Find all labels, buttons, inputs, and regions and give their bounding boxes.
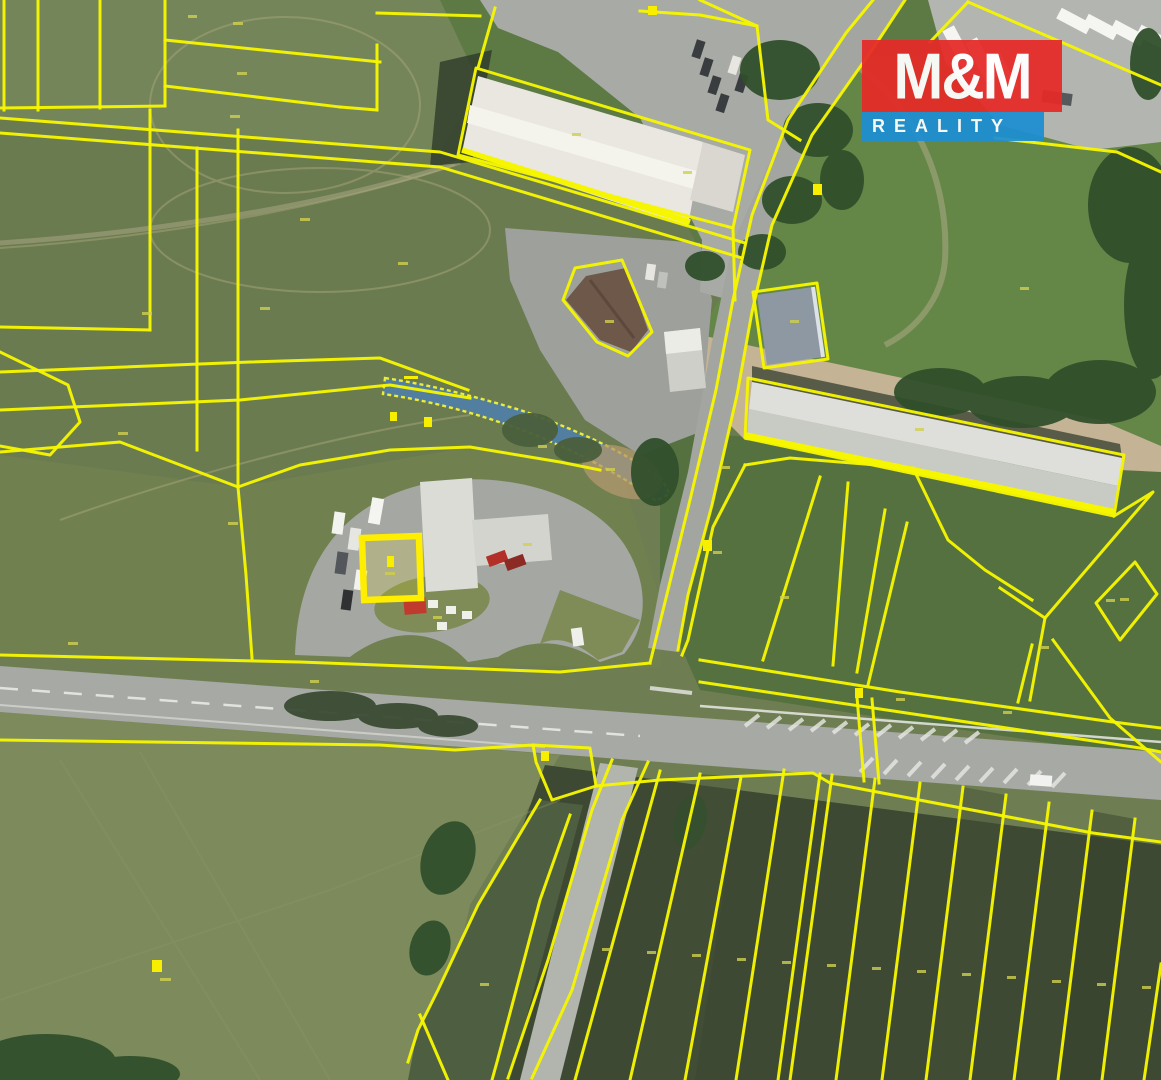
gas-station-building: [420, 478, 478, 592]
logo-title-box: M&M: [862, 40, 1062, 112]
logo-subtitle: REALITY: [862, 116, 1012, 137]
mm-reality-logo: M&M REALITY: [862, 40, 1062, 141]
listing-map-image: M&M REALITY: [0, 0, 1161, 1080]
car-on-road: [1030, 774, 1053, 787]
highlighted-parcel: [362, 536, 421, 600]
logo-subtitle-box: REALITY: [862, 112, 1044, 141]
logo-title: M&M: [893, 39, 1030, 114]
aerial-map: [0, 0, 1161, 1080]
